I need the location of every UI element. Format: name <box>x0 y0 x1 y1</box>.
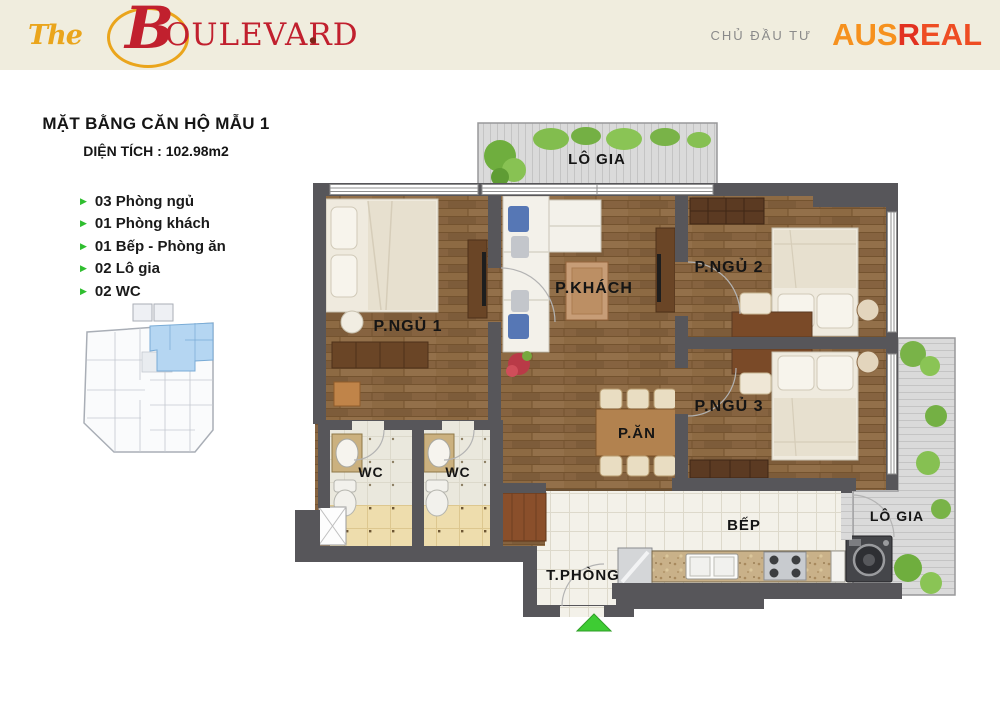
room-label-kitchen: BẾP <box>727 517 761 534</box>
room-label-bedroom2: P.NGỦ 2 <box>695 257 764 276</box>
site-plan-thumbnail <box>84 304 213 452</box>
page: The B OULEVARD . CHỦ ĐẦU TƯ AUSREAL MẶT … <box>0 0 1000 708</box>
bed-bedroom1 <box>326 199 438 312</box>
room-label-dining: P.ĂN <box>618 425 656 442</box>
room-label-wc1: WC <box>358 464 383 480</box>
room-label-living: P.KHÁCH <box>555 278 633 297</box>
wardrobe-bedroom2 <box>690 198 764 224</box>
cabinet-hall <box>500 493 546 541</box>
washing-machine-icon <box>846 536 892 582</box>
room-label-balcony-bottom: LÔ GIA <box>870 507 924 524</box>
tv-console-living <box>656 228 675 312</box>
room-label-bedroom3: P.NGỦ 3 <box>695 396 764 415</box>
room-label-wc2: WC <box>445 464 470 480</box>
room-label-bedroom1: P.NGỦ 1 <box>374 316 443 335</box>
tv-console-bedroom1 <box>468 240 487 318</box>
room-label-utility: T.PHÒNG <box>546 566 620 584</box>
floor-plan: LÔ GIA P.NGỦ 1 P.KHÁCH P.NGỦ 2 P.NGỦ 3 P… <box>0 0 1000 708</box>
wardrobe-bedroom3 <box>690 460 768 478</box>
room-label-balcony-top: LÔ GIA <box>568 150 626 168</box>
kitchen-counter <box>618 548 845 586</box>
shaft <box>319 507 346 545</box>
